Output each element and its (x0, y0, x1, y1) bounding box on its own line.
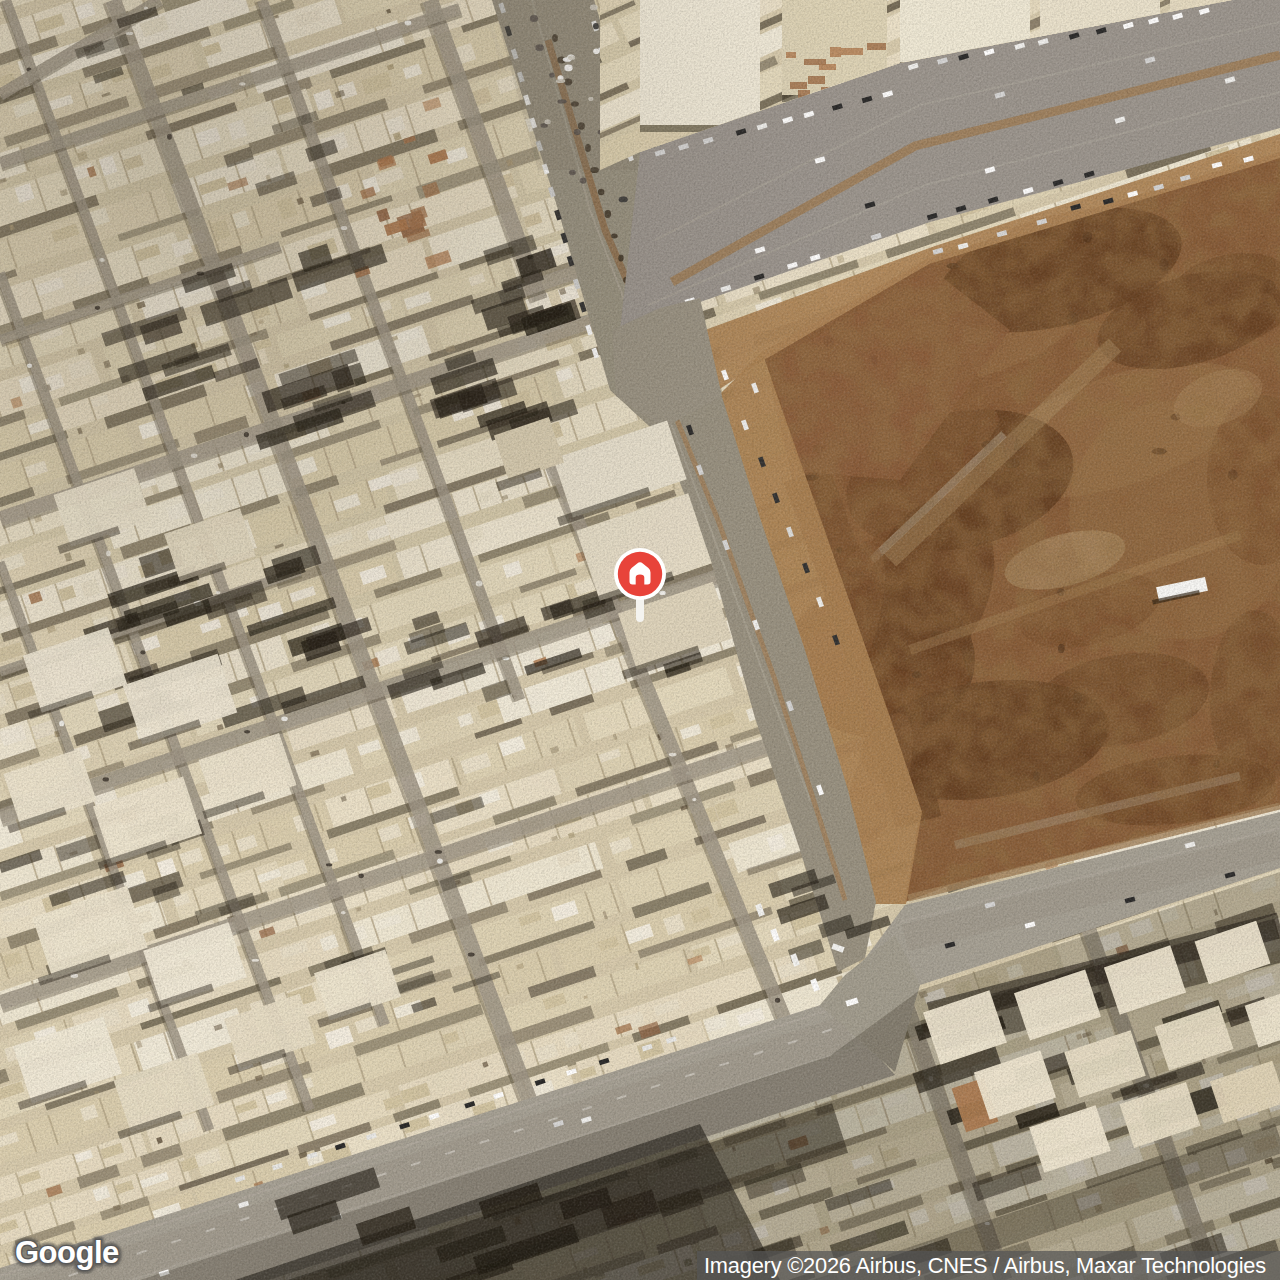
svg-text:Imagery ©2026 Airbus, CNES / A: Imagery ©2026 Airbus, CNES / Airbus, Max… (704, 1253, 1266, 1278)
svg-text:Google: Google (15, 1235, 119, 1270)
